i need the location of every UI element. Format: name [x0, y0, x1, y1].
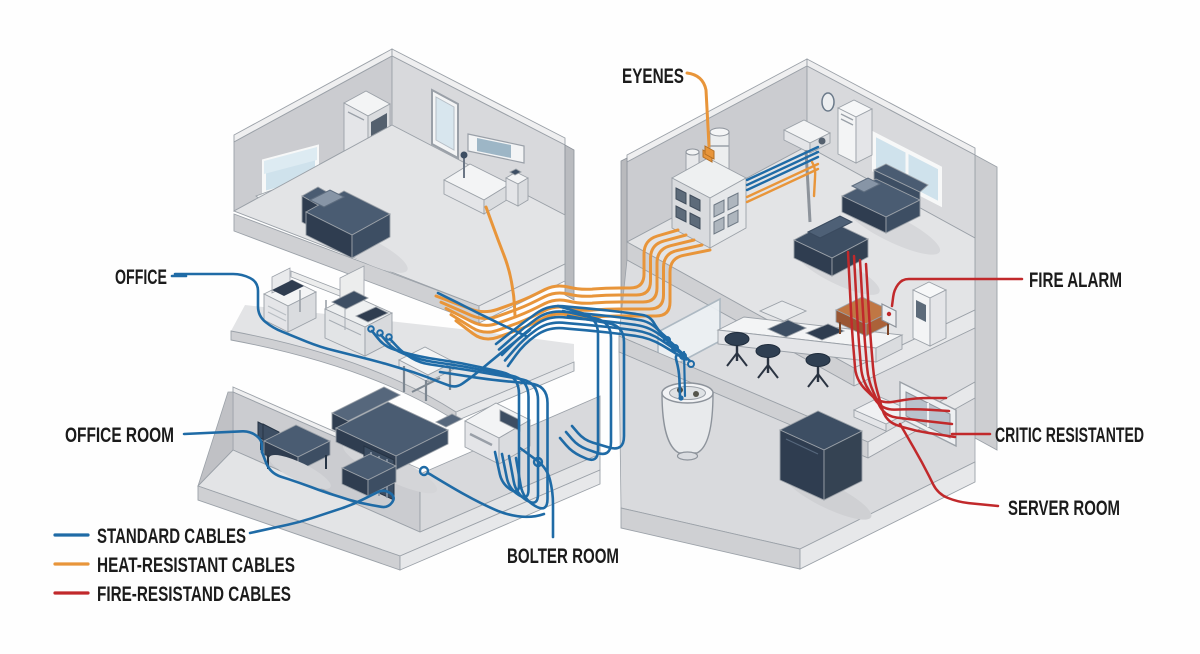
svg-text:FIRE-RESISTAND CABLES: FIRE-RESISTAND CABLES: [97, 583, 291, 606]
svg-text:OFFICE: OFFICE: [115, 266, 167, 289]
svg-text:FIRE ALARM: FIRE ALARM: [1029, 269, 1122, 292]
svg-text:SERVER ROOM: SERVER ROOM: [1008, 497, 1120, 520]
svg-text:STANDARD CABLES: STANDARD CABLES: [97, 525, 246, 548]
svg-text:HEAT-RESISTANT CABLES: HEAT-RESISTANT CABLES: [97, 554, 295, 577]
svg-text:CRITIC RESISTANTED: CRITIC RESISTANTED: [995, 424, 1144, 447]
svg-text:EYENES: EYENES: [622, 65, 684, 88]
svg-text:BOLTER ROOM: BOLTER ROOM: [507, 545, 619, 568]
svg-text:OFFICE ROOM: OFFICE ROOM: [65, 424, 174, 447]
